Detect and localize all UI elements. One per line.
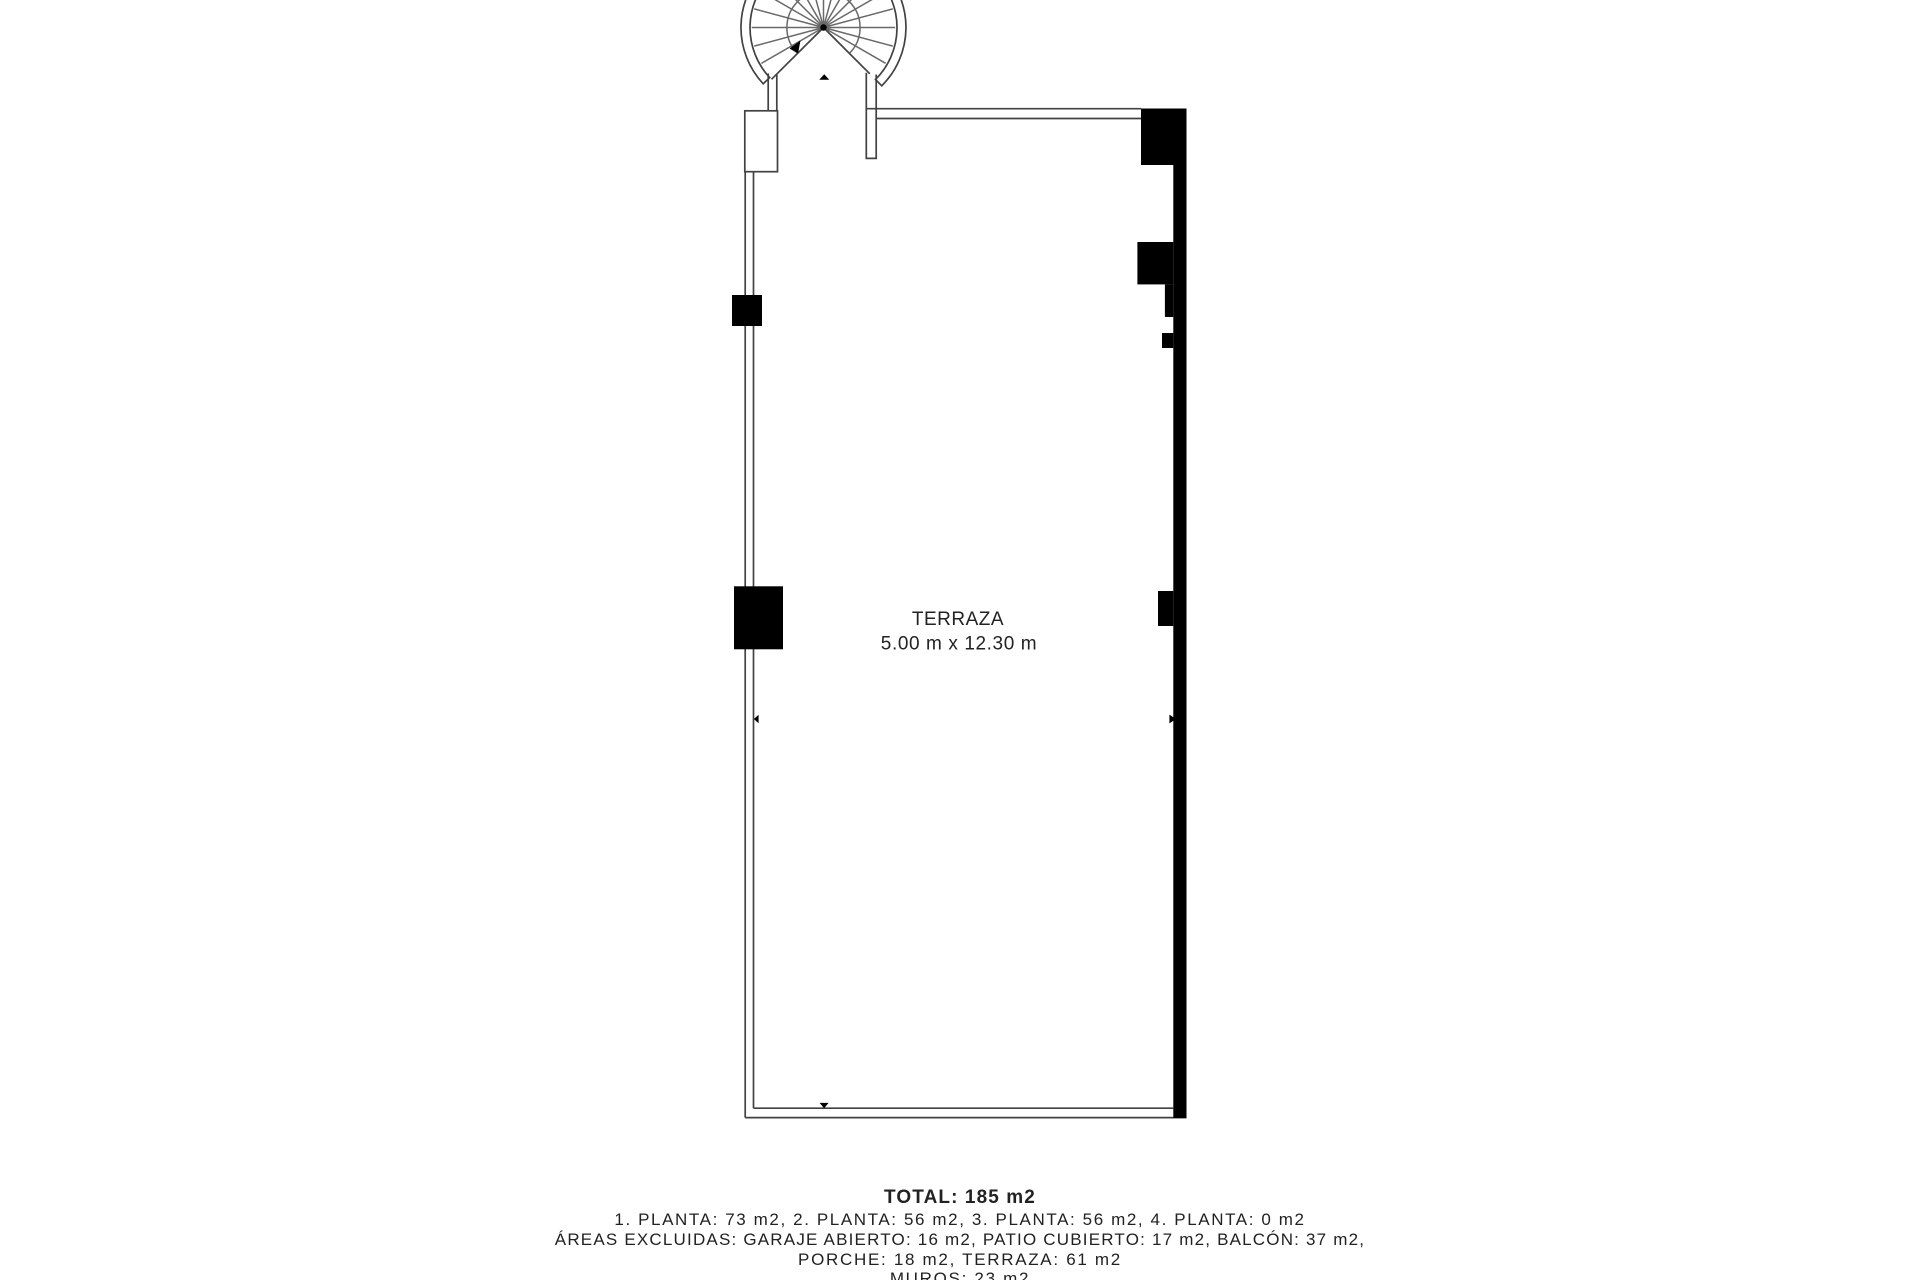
svg-text:ÁREAS EXCLUIDAS: GARAJE ABIERT: ÁREAS EXCLUIDAS: GARAJE ABIERTO: 16 m2, … xyxy=(555,1230,1365,1249)
svg-text:MUROS: 23 m2: MUROS: 23 m2 xyxy=(890,1269,1030,1280)
svg-text:1. PLANTA: 73 m2, 2. PLANTA: 5: 1. PLANTA: 73 m2, 2. PLANTA: 56 m2, 3. P… xyxy=(614,1210,1305,1229)
svg-text:PORCHE: 18 m2, TERRAZA: 61 m2: PORCHE: 18 m2, TERRAZA: 61 m2 xyxy=(798,1250,1122,1269)
svg-text:TOTAL: 185 m2: TOTAL: 185 m2 xyxy=(884,1187,1036,1208)
svg-text:5.00 m x 12.30 m: 5.00 m x 12.30 m xyxy=(881,634,1037,655)
svg-text:TERRAZA: TERRAZA xyxy=(912,609,1004,630)
